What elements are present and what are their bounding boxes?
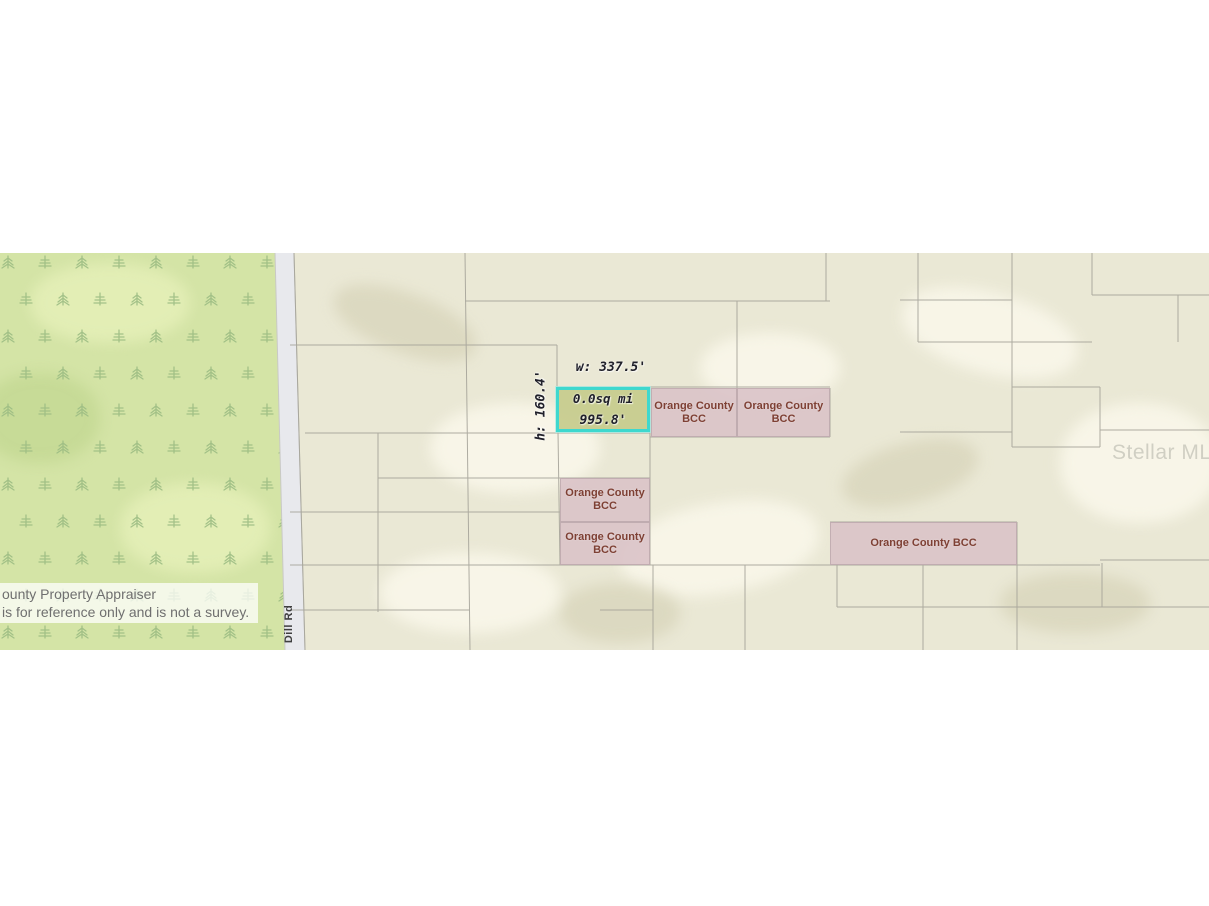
- parcel-owner-label: Orange County BCC: [565, 487, 645, 513]
- bottom-letterbox: [0, 650, 1209, 906]
- disclaimer-line-2: is for reference only and is not a surve…: [2, 603, 254, 621]
- highlighted-parcel[interactable]: Orange County BCC: [830, 522, 1017, 565]
- selected-parcel-height-label: h: 160.4': [534, 366, 549, 446]
- disclaimer-line-1: ounty Property Appraiser: [2, 585, 254, 603]
- terrain-shadow: [324, 269, 485, 377]
- highlighted-parcel[interactable]: Orange County BCC: [560, 478, 650, 522]
- terrain-shadow: [835, 426, 986, 520]
- parcel-owner-label: Orange County BCC: [869, 537, 979, 550]
- highlighted-parcel[interactable]: Orange County BCC: [737, 388, 830, 437]
- screenshot-stage: Orange County BCC Orange County BCC Oran…: [0, 0, 1209, 906]
- road-name-label: Dill Rd: [283, 594, 297, 650]
- terrain-highlight: [380, 553, 560, 633]
- terrain-shadow: [560, 583, 680, 643]
- selected-parcel-area-label: 0.0sq mi: [559, 391, 647, 406]
- parcel-owner-label: Orange County BCC: [654, 400, 734, 426]
- highlighted-parcel[interactable]: Orange County BCC: [560, 522, 650, 565]
- parcel-owner-label: Orange County BCC: [744, 400, 824, 426]
- parcel-owner-label: Orange County BCC: [565, 531, 645, 557]
- disclaimer-box: ounty Property Appraiser is for referenc…: [0, 583, 258, 623]
- terrain-highlight: [893, 271, 1088, 395]
- selected-parcel[interactable]: 0.0sq mi 995.8': [556, 387, 650, 432]
- stellar-mls-watermark: Stellar MLS: [1112, 441, 1209, 465]
- map-viewport[interactable]: Orange County BCC Orange County BCC Oran…: [0, 253, 1209, 650]
- top-letterbox: [0, 0, 1209, 253]
- terrain-shadow: [1000, 573, 1150, 633]
- selected-parcel-width-label: w: 337.5': [565, 360, 657, 375]
- selected-parcel-perimeter-label: 995.8': [559, 413, 647, 428]
- highlighted-parcel[interactable]: Orange County BCC: [651, 388, 737, 437]
